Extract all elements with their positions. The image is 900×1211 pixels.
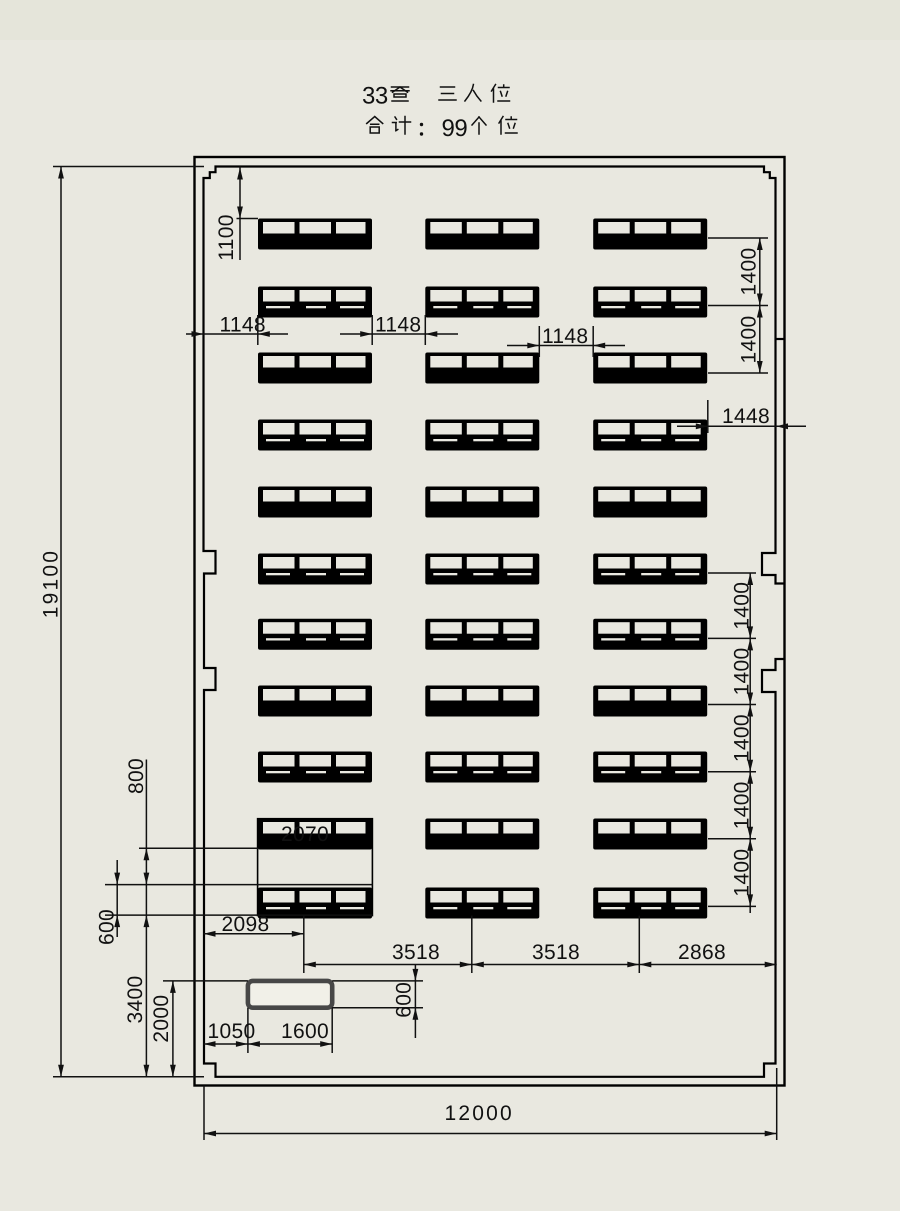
svg-text:1050: 1050 — [208, 1020, 256, 1043]
svg-text:1400: 1400 — [731, 647, 754, 695]
svg-text:1400: 1400 — [731, 714, 754, 762]
svg-text:600: 600 — [96, 909, 119, 945]
svg-text:1448: 1448 — [722, 405, 770, 428]
svg-text:2000: 2000 — [150, 995, 173, 1043]
svg-text:1400: 1400 — [731, 849, 754, 897]
svg-text:1400: 1400 — [738, 316, 761, 364]
svg-text:19100: 19100 — [40, 549, 63, 618]
svg-text:3400: 3400 — [124, 976, 147, 1024]
svg-text:1100: 1100 — [215, 214, 238, 260]
svg-text:3518: 3518 — [532, 941, 580, 964]
svg-text:1400: 1400 — [731, 781, 754, 829]
svg-text:1148: 1148 — [542, 325, 588, 348]
svg-text:1400: 1400 — [731, 582, 754, 630]
svg-text:99: 99 — [442, 115, 468, 142]
svg-text:2868: 2868 — [678, 941, 726, 964]
svg-text:1600: 1600 — [281, 1020, 329, 1043]
svg-text:2098: 2098 — [222, 913, 270, 936]
svg-text:12000: 12000 — [445, 1102, 514, 1125]
svg-text:1400: 1400 — [738, 248, 761, 296]
svg-text:800: 800 — [125, 758, 148, 794]
svg-text:1148: 1148 — [375, 314, 421, 337]
svg-text:33: 33 — [362, 83, 388, 110]
svg-text:3518: 3518 — [392, 941, 440, 964]
svg-text:2070: 2070 — [281, 823, 329, 846]
svg-text:600: 600 — [393, 982, 416, 1018]
svg-text:1148: 1148 — [220, 314, 266, 337]
